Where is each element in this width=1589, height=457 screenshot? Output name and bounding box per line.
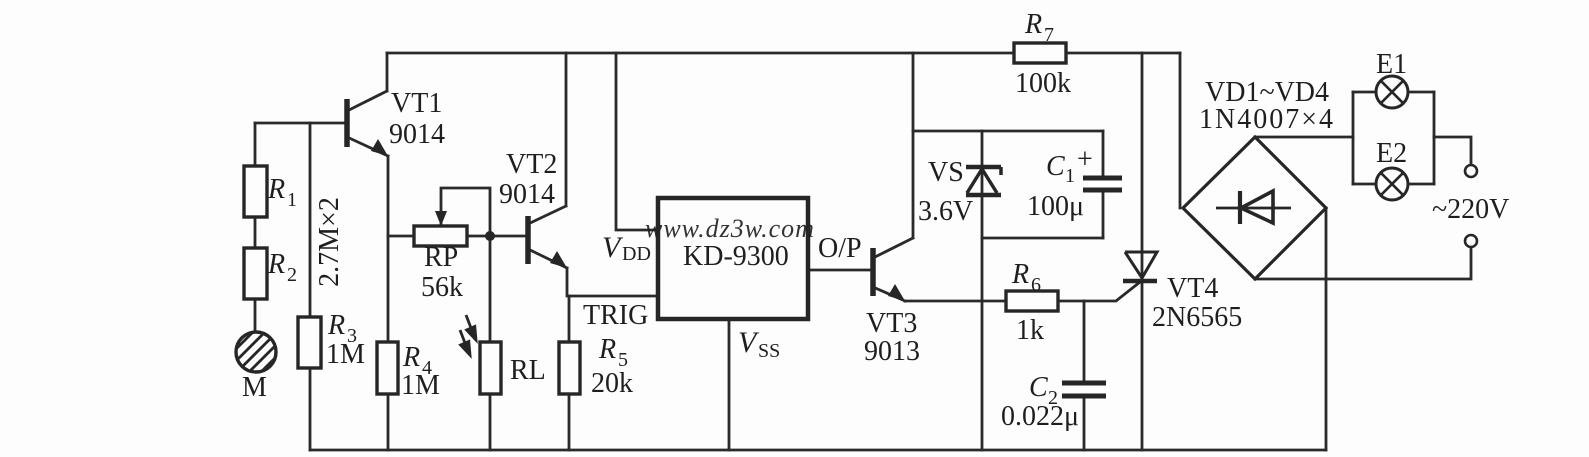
- svg-text:SS: SS: [758, 340, 780, 362]
- svg-text:1N4007×4: 1N4007×4: [1199, 104, 1335, 135]
- svg-text:1M: 1M: [326, 339, 365, 370]
- svg-text:C: C: [1029, 372, 1048, 403]
- svg-text:R: R: [267, 249, 285, 280]
- svg-text:www.dz3w.com: www.dz3w.com: [645, 214, 815, 243]
- svg-text:100k: 100k: [1015, 68, 1071, 99]
- svg-text:1M: 1M: [401, 370, 440, 401]
- svg-text:R: R: [267, 174, 285, 205]
- svg-text:2: 2: [287, 264, 297, 286]
- svg-text:2N6565: 2N6565: [1152, 302, 1242, 333]
- svg-text:0.022μ: 0.022μ: [1001, 401, 1079, 432]
- svg-text:100μ: 100μ: [1027, 191, 1084, 222]
- svg-text:RP: RP: [424, 242, 458, 273]
- svg-text:M: M: [242, 372, 267, 403]
- svg-text:DD: DD: [622, 243, 651, 265]
- svg-text:2.7M×2: 2.7M×2: [314, 197, 345, 287]
- svg-text:1: 1: [287, 189, 297, 211]
- svg-text:KD-9300: KD-9300: [683, 241, 789, 272]
- svg-text:VT2: VT2: [506, 149, 557, 180]
- svg-text:R: R: [1024, 9, 1042, 40]
- svg-text:6: 6: [1031, 274, 1041, 296]
- svg-text:RL: RL: [510, 355, 546, 386]
- svg-text:1k: 1k: [1016, 315, 1044, 346]
- svg-text:R: R: [1011, 259, 1029, 290]
- svg-text:VS: VS: [928, 157, 964, 188]
- svg-text:1: 1: [1065, 165, 1075, 187]
- svg-text:VT1: VT1: [391, 88, 442, 119]
- svg-text:O/P: O/P: [818, 233, 862, 264]
- svg-text:E2: E2: [1376, 138, 1407, 169]
- svg-text:9014: 9014: [389, 119, 445, 150]
- svg-text:3.6V: 3.6V: [918, 196, 973, 227]
- svg-text:C: C: [1046, 151, 1065, 182]
- svg-text:VT4: VT4: [1167, 273, 1218, 304]
- svg-text:TRIG: TRIG: [583, 300, 648, 331]
- svg-text:~220V: ~220V: [1432, 194, 1509, 225]
- svg-text:R: R: [598, 334, 616, 365]
- svg-text:20k: 20k: [591, 368, 633, 399]
- svg-text:E1: E1: [1376, 49, 1407, 80]
- svg-text:9014: 9014: [499, 179, 555, 210]
- svg-text:VT3: VT3: [866, 308, 917, 339]
- svg-text:56k: 56k: [421, 272, 463, 303]
- svg-text:+: +: [1077, 144, 1093, 175]
- svg-text:7: 7: [1044, 24, 1054, 46]
- svg-text:R: R: [402, 342, 420, 373]
- svg-text:R: R: [327, 310, 345, 341]
- svg-text:9013: 9013: [864, 336, 920, 367]
